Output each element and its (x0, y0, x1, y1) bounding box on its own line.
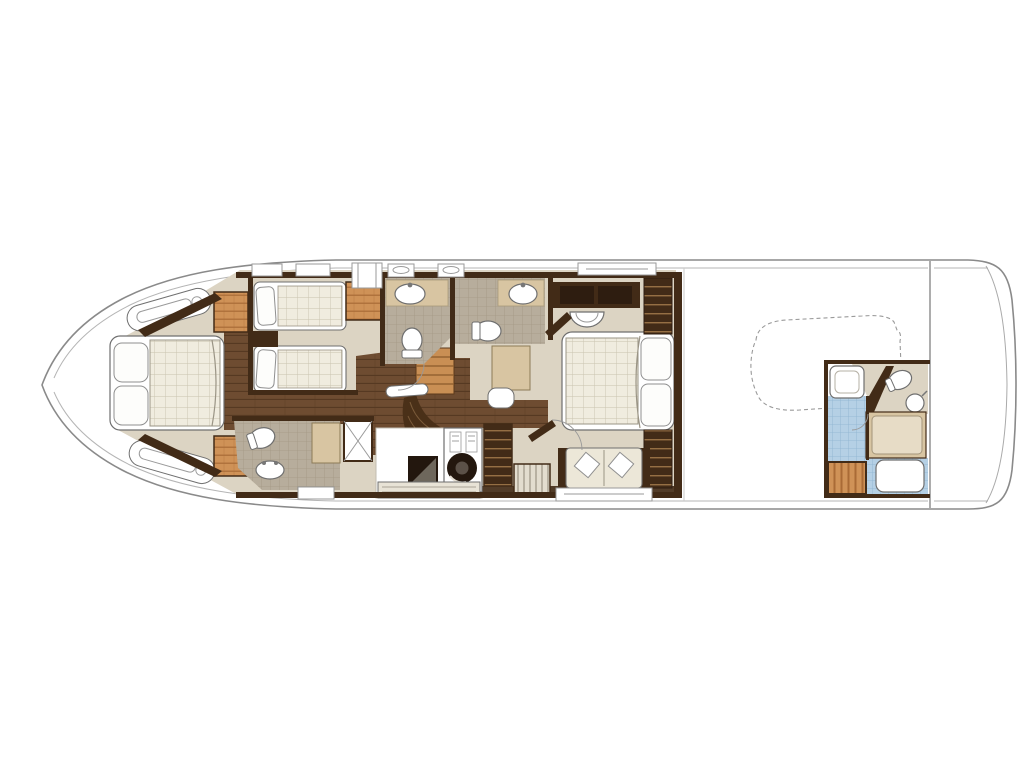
technical-hatch (344, 421, 372, 461)
stair-banister (386, 384, 429, 398)
vip-mattress (150, 340, 220, 426)
h-frame-hatch (352, 263, 382, 288)
crew-cabin (824, 360, 930, 498)
twin-bed-1 (254, 282, 346, 330)
vip-pillow-top (114, 343, 148, 382)
bath-a-toilet (402, 328, 422, 358)
hanging-locker (514, 464, 550, 494)
shelf-unit (484, 424, 512, 486)
twin-nightstand (250, 331, 278, 347)
bath-b-seat (488, 388, 514, 408)
vip-bed (110, 336, 224, 430)
crew-steps (828, 462, 866, 494)
floor-plan-page (0, 0, 1024, 768)
bath-a-tap (408, 283, 413, 288)
master-mattress (566, 338, 638, 424)
crew-bed (866, 412, 926, 458)
yacht-floor-plan (0, 0, 1024, 768)
crew-mattress (872, 416, 922, 454)
master-sofa (558, 448, 650, 490)
bath-c-shower (312, 423, 340, 463)
vip-pillow-bottom (114, 386, 148, 425)
twin-pillow-2 (256, 349, 277, 388)
bath-b-shower (492, 346, 530, 390)
master-pillow-bottom (641, 384, 671, 426)
bath-b-toilet (472, 321, 501, 341)
bath-b-tap (521, 283, 526, 288)
vanity-desk (552, 282, 640, 308)
bath-c-sink (256, 461, 284, 479)
master-wardrobe (644, 278, 672, 334)
crew-lower-berth (876, 460, 924, 492)
twin-pillow-1 (256, 286, 277, 325)
master-pillow-top (641, 338, 671, 380)
twin-bed-2 (254, 346, 346, 392)
master-bed (562, 332, 674, 430)
